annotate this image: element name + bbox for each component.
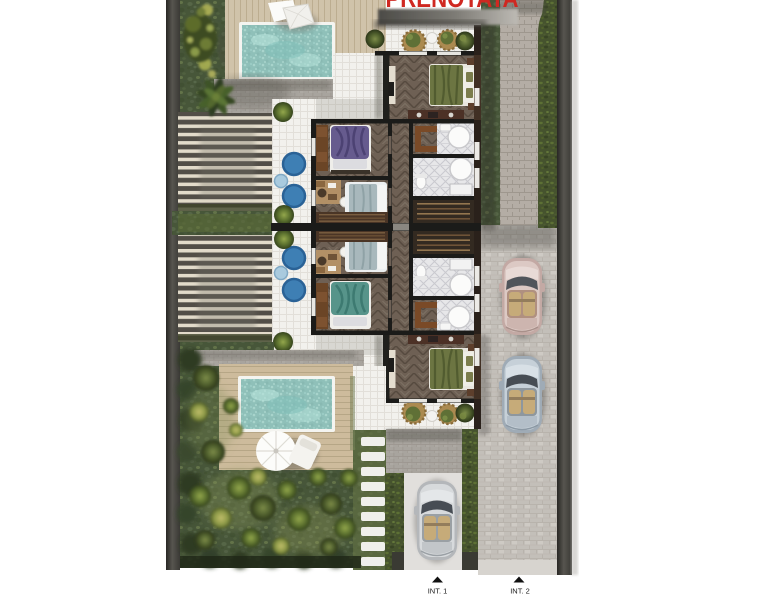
svg-text:INT. 1: INT. 1 (428, 587, 448, 596)
svg-text:PRENOTATA: PRENOTATA (386, 0, 519, 13)
svg-text:INT. 2: INT. 2 (510, 587, 530, 596)
